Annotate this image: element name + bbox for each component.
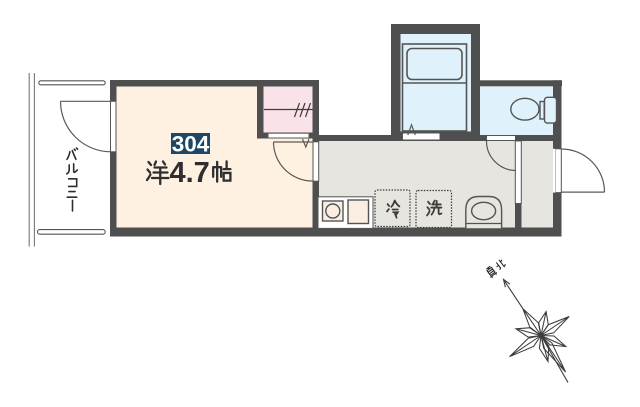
svg-text:4.7: 4.7 — [170, 157, 210, 189]
svg-text:304: 304 — [172, 132, 210, 157]
